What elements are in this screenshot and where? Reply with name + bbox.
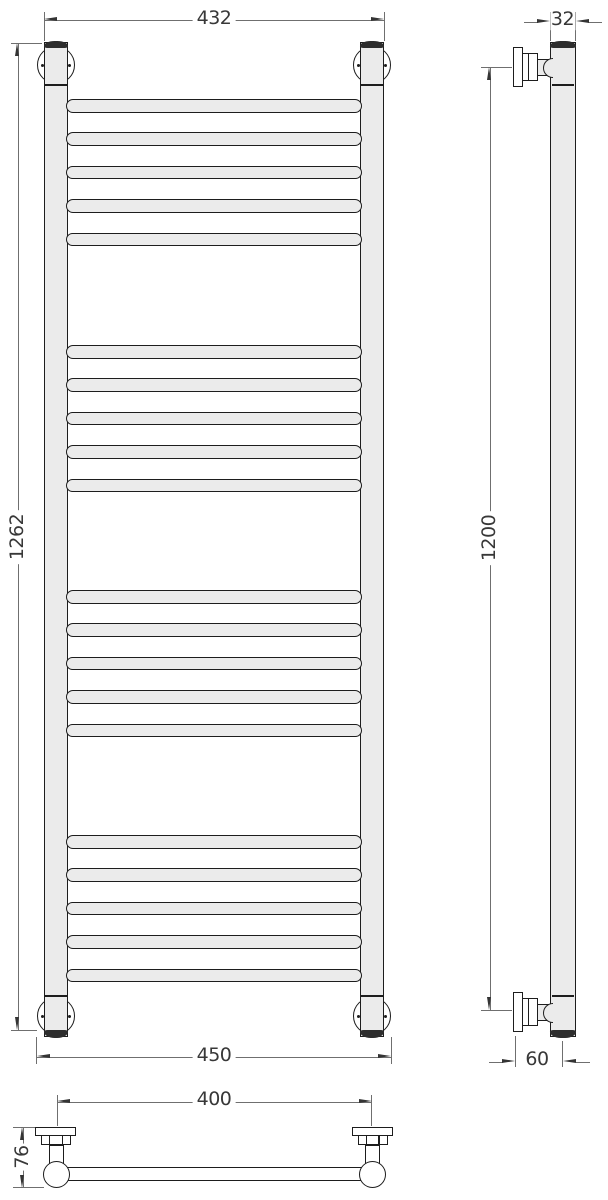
rung [66, 690, 362, 704]
rung [66, 378, 362, 392]
extension-line [36, 1037, 37, 1064]
dim-front-bottom-width: 450 [193, 1046, 236, 1066]
rung [66, 345, 362, 359]
hex-nut [41, 1135, 71, 1145]
nut-facet [528, 999, 529, 1025]
arrowhead [563, 1059, 576, 1063]
arrowhead [537, 19, 550, 23]
dim-side-height: 1200 [480, 511, 500, 565]
rung [66, 445, 362, 459]
rung [66, 724, 362, 738]
rung [66, 935, 362, 949]
hex-nut [358, 1135, 388, 1145]
tube-seam [45, 84, 68, 86]
extension-line [13, 1187, 44, 1188]
rung [66, 969, 362, 983]
hex-nut [522, 53, 538, 81]
dimension-tail [489, 1062, 503, 1063]
rung [66, 902, 362, 916]
arrowhead [371, 17, 384, 21]
arrowhead [502, 1059, 515, 1063]
rung [66, 132, 362, 146]
arrowhead [57, 1099, 70, 1103]
right-post-tube [360, 42, 385, 1037]
side-tube [550, 42, 576, 1037]
tube-cap [360, 1030, 385, 1038]
extension-line [384, 12, 385, 41]
left-post-tube [44, 42, 69, 1037]
extension-line [575, 12, 576, 41]
rung [66, 233, 362, 247]
nut-facet [62, 1136, 63, 1144]
arrowhead [37, 1054, 50, 1058]
tube-cross-section-right [359, 1161, 386, 1188]
extension-line [481, 67, 512, 68]
arrowhead [359, 1099, 372, 1103]
rung [66, 590, 362, 604]
dimension-tail [576, 1062, 590, 1063]
dim-wall-to-tube-axis: 60 [524, 1050, 549, 1070]
tube-cap [360, 41, 385, 48]
nut-facet [378, 1136, 379, 1144]
tube-seam [552, 995, 575, 997]
tube-seam [45, 995, 68, 997]
arrowhead [487, 997, 491, 1010]
dim-front-height: 1262 [8, 510, 28, 564]
nut-facet [366, 1136, 367, 1144]
rung [66, 623, 362, 637]
rung [66, 835, 362, 849]
extension-line [44, 12, 45, 41]
bracket-center-mark [384, 1015, 387, 1018]
tube-seam [361, 84, 384, 86]
dim-front-top-width: 432 [193, 9, 236, 29]
arrowhead [487, 67, 491, 80]
tube-cap [44, 41, 69, 48]
nut-facet [528, 54, 529, 80]
dim-bracket-depth: 76 [13, 1143, 33, 1170]
nut-facet [49, 1136, 50, 1144]
bracket-center-mark [68, 1015, 71, 1018]
arrowhead [15, 43, 19, 56]
rung [66, 166, 362, 180]
technical-drawing-canvas: 432 1262 450 [0, 0, 608, 1200]
rung [66, 412, 362, 426]
bracket-center-mark [68, 64, 71, 67]
tube-cap [44, 1030, 69, 1038]
arrowhead [44, 17, 57, 21]
rung [66, 868, 362, 882]
dim-bracket-center-spacing: 400 [193, 1090, 236, 1110]
rung [66, 199, 362, 213]
tube-seam [552, 84, 575, 86]
hex-nut [522, 998, 538, 1026]
bracket-center-mark [384, 64, 387, 67]
arrowhead [20, 1127, 24, 1140]
tube-cap [550, 1030, 576, 1038]
tube-cap [550, 41, 576, 48]
arrowhead [576, 19, 589, 23]
rung [66, 99, 362, 113]
rung [66, 657, 362, 671]
rung [66, 479, 362, 493]
tube-cross-section-left [43, 1161, 70, 1188]
arrowhead [20, 1175, 24, 1188]
arrowhead [15, 1017, 19, 1030]
dim-tube-diameter: 32 [550, 10, 575, 30]
arrowhead [378, 1054, 391, 1058]
extension-line [481, 1010, 512, 1011]
dimension-tail [524, 22, 538, 23]
rung-bar-profile [58, 1167, 370, 1181]
tube-seam [361, 995, 384, 997]
extension-line [391, 1037, 392, 1064]
dimension-tail [588, 22, 602, 23]
